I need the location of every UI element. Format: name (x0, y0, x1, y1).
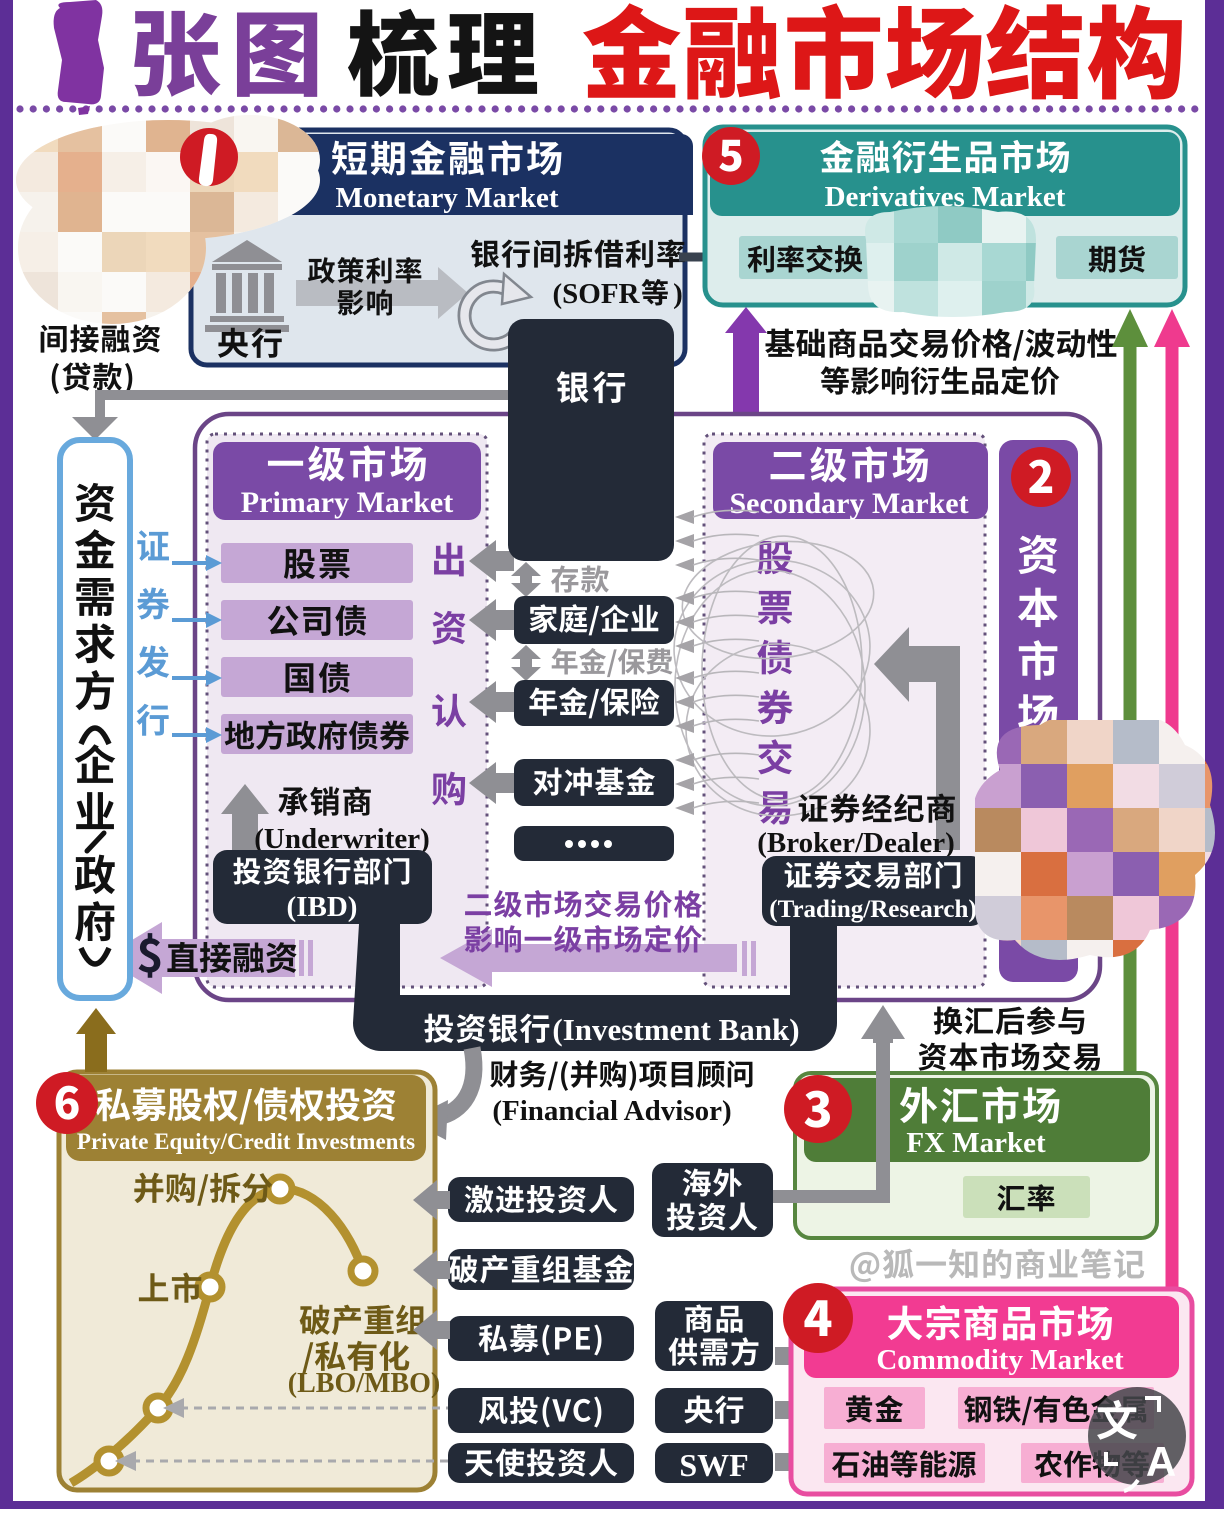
svg-text:(Trading/Research): (Trading/Research) (769, 896, 976, 923)
svg-text:(IBD): (IBD) (287, 891, 358, 923)
svg-text:(SOFR: (SOFR (553, 278, 641, 310)
svg-text:SWF: SWF (679, 1447, 748, 1483)
svg-text:(Broker/Dealer): (Broker/Dealer) (757, 827, 955, 859)
svg-text:(Investment Bank): (Investment Bank) (552, 1012, 799, 1047)
svg-text:Private Equity/Credit Investme: Private Equity/Credit Investments (77, 1129, 415, 1154)
svg-text:A: A (1146, 1438, 1176, 1485)
svg-text:(LBO/MBO): (LBO/MBO) (288, 1368, 440, 1399)
svg-text:): ) (673, 278, 683, 310)
svg-text:Secondary Market: Secondary Market (729, 487, 968, 520)
svg-text:Primary Market: Primary Market (241, 486, 453, 519)
svg-text:(Financial Advisor): (Financial Advisor) (492, 1095, 731, 1127)
svg-text:Monetary Market: Monetary Market (335, 182, 558, 214)
svg-text:Commodity Market: Commodity Market (876, 1344, 1124, 1376)
svg-text:FX Market: FX Market (906, 1127, 1046, 1159)
